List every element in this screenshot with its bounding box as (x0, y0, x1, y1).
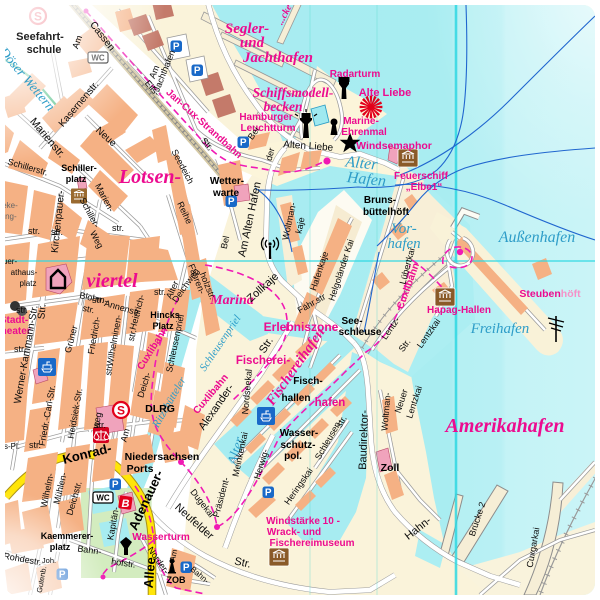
svg-text:platz: platz (66, 174, 87, 184)
svg-text:Niedersachsen: Niedersachsen (125, 451, 200, 463)
svg-text:Zoll: Zoll (381, 462, 400, 474)
svg-text:hafen: hafen (315, 397, 346, 409)
svg-text:Bruns-: Bruns- (364, 195, 396, 206)
svg-text:Wetter-: Wetter- (210, 176, 244, 187)
svg-text:Feuerschiff: Feuerschiff (394, 171, 449, 182)
svg-text:Seefahrt-: Seefahrt- (16, 31, 64, 43)
svg-text:str.: str. (16, 305, 28, 315)
svg-text:str.: str. (154, 287, 166, 297)
svg-text:warte: warte (212, 188, 240, 199)
svg-text:Windsemaphor: Windsemaphor (356, 140, 432, 152)
svg-text:P: P (265, 488, 272, 499)
svg-text:platz: platz (50, 542, 71, 552)
svg-text:Fisch-: Fisch- (293, 376, 322, 387)
svg-text:„Elbe1“: „Elbe1“ (406, 182, 443, 193)
svg-text:P: P (194, 66, 201, 77)
svg-text:DLRG: DLRG (145, 403, 175, 415)
svg-text:Alte Liebe: Alte Liebe (359, 87, 412, 99)
svg-text:Baudirektor-: Baudirektor- (357, 409, 371, 470)
svg-text:uer-: uer- (3, 257, 18, 266)
svg-text:Freihafen: Freihafen (470, 321, 530, 337)
svg-text:str.: str. (94, 420, 106, 430)
svg-text:Kaemmerer-: Kaemmerer- (41, 531, 94, 541)
svg-text:Schiffsmodell-: Schiffsmodell- (253, 85, 334, 100)
svg-text:P: P (240, 138, 247, 149)
svg-text:s-Pl.: s-Pl. (4, 442, 20, 451)
svg-text:Radarturm: Radarturm (330, 69, 381, 80)
svg-text:str.: str. (51, 227, 63, 237)
svg-text:str.: str. (112, 223, 124, 233)
svg-text:büttelhöft: büttelhöft (363, 207, 410, 218)
svg-text:Platz: Platz (152, 321, 174, 331)
svg-text:athaus-: athaus- (11, 268, 38, 277)
svg-text:Wasserturm: Wasserturm (132, 532, 190, 543)
svg-text:Fischereimuseum: Fischereimuseum (269, 538, 354, 549)
svg-text:str.: str. (14, 344, 26, 354)
svg-text:str.: str. (29, 440, 41, 450)
svg-text:pol.: pol. (284, 451, 302, 462)
svg-text:Marine-: Marine- (343, 116, 379, 127)
svg-text:viertel: viertel (86, 270, 138, 292)
svg-text:Steubenhöft: Steubenhöft (519, 288, 581, 300)
svg-text:B: B (122, 498, 130, 510)
svg-text:schutz-: schutz- (281, 440, 316, 451)
svg-text:str.: str. (92, 295, 104, 305)
svg-text:Jachthafen: Jachthafen (242, 50, 313, 66)
svg-text:Wasser-: Wasser- (280, 428, 319, 439)
svg-text:Hamburger: Hamburger (239, 112, 292, 123)
svg-text:Lotsen-: Lotsen- (118, 166, 181, 188)
svg-text:str.: str. (103, 363, 115, 377)
svg-text:schleuse: schleuse (339, 327, 382, 338)
svg-text:P: P (183, 563, 190, 574)
svg-text:See-: See- (341, 316, 362, 327)
svg-text:platz: platz (20, 279, 37, 288)
svg-text:S: S (117, 404, 125, 418)
svg-text:Vor-: Vor- (391, 221, 417, 237)
svg-text:Ehrenmal: Ehrenmal (341, 127, 387, 138)
svg-text:und: und (240, 35, 265, 51)
svg-text:Windstärke 10 -: Windstärke 10 - (266, 516, 340, 527)
svg-text:str.: str. (28, 226, 40, 236)
svg-text:Joh.: Joh. (42, 556, 56, 565)
svg-text:Außenhafen: Außenhafen (498, 229, 575, 246)
svg-text:hallen: hallen (282, 393, 311, 404)
svg-text:Allee: Allee (141, 556, 159, 588)
svg-text:ing-: ing- (3, 212, 17, 221)
svg-text:Fischerei-: Fischerei- (236, 355, 290, 367)
svg-text:ZOB: ZOB (167, 575, 186, 585)
svg-text:Amerikahafen: Amerikahafen (444, 415, 565, 437)
svg-text:Hapag-Hallen: Hapag-Hallen (427, 305, 491, 316)
svg-text:schule: schule (27, 44, 62, 56)
svg-text:Schiller-: Schiller- (61, 163, 97, 173)
svg-text:Wrack- und: Wrack- und (267, 527, 321, 538)
svg-text:Erlebniszone: Erlebniszone (264, 320, 339, 334)
